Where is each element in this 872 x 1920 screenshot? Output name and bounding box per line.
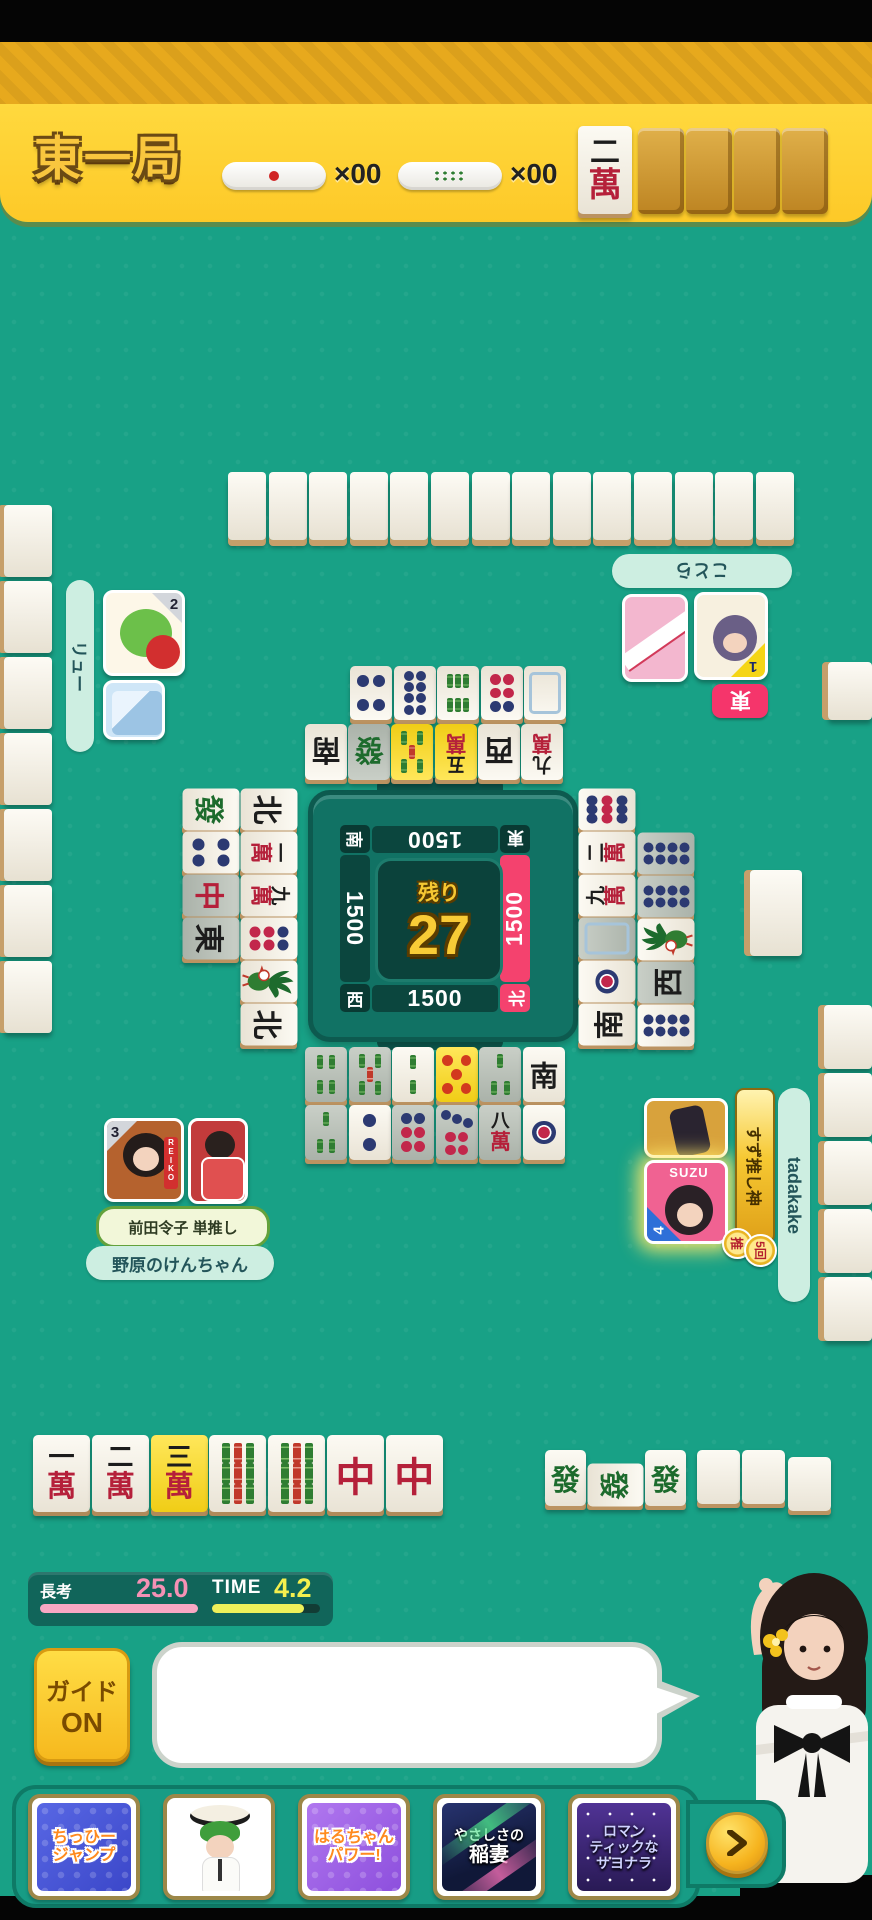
thousand-point-stick-icon — [222, 162, 326, 190]
wall-tile — [4, 581, 52, 653]
wall-tile — [824, 1005, 872, 1069]
tile-2s — [392, 1047, 434, 1102]
avatar-right-glowing: SUZU 4 — [644, 1160, 728, 1244]
time-value: 4.2 — [274, 1573, 312, 1604]
chevron-right-icon — [726, 1830, 748, 1856]
blank-tile-slot — [742, 1450, 785, 1504]
wall-tile — [824, 1141, 872, 1205]
tile-6p — [240, 917, 297, 959]
wall-tile — [309, 472, 347, 540]
bowing-character-icon — [172, 1803, 266, 1891]
header-backdrop — [0, 42, 872, 112]
tile-5s — [349, 1047, 391, 1102]
tile-8p — [637, 1004, 694, 1046]
riichi-stick-count: ×00 — [334, 158, 382, 190]
wall-tile — [4, 505, 52, 577]
tile-9m: 九萬 — [240, 874, 297, 916]
skill-card-1[interactable]: ちっひー ジャンプ — [28, 1794, 140, 1900]
tile-H — [578, 917, 635, 959]
speech-bubble — [152, 1642, 662, 1768]
more-skills-button[interactable] — [706, 1812, 768, 1874]
wall-tile — [824, 1073, 872, 1137]
player-name-top: ことら — [612, 554, 792, 588]
wall-tile — [715, 472, 753, 540]
wall-tile — [634, 472, 672, 540]
avatar-top: 1 — [694, 592, 768, 680]
tile-8p — [637, 832, 694, 874]
tile-6s — [437, 666, 479, 720]
tile-N: 北 — [240, 788, 297, 830]
skill-card-5[interactable]: ロマン ティックな サヨナラ — [568, 1794, 680, 1900]
wall-tile — [4, 657, 52, 729]
timer-panel: 長考 25.0 TIME 4.2 — [28, 1572, 333, 1626]
hand-tile-9s[interactable] — [209, 1435, 266, 1512]
meld-tile-F-called: 發 — [587, 1463, 643, 1506]
wall-tile — [4, 809, 52, 881]
game-screen: 東一局 ×00 ×00 二萬 南 1500 東 1500 1500 西 1500… — [0, 0, 872, 1920]
tile-4p — [350, 666, 392, 720]
wall-tile — [824, 1209, 872, 1273]
seat-wind-left: 南 — [340, 825, 370, 853]
tile-3s — [305, 1105, 347, 1160]
wall-tile — [228, 472, 266, 540]
hundred-stick-count: ×00 — [510, 158, 558, 190]
photo-card-right — [644, 1098, 728, 1158]
seat-wind-right: 北 — [500, 984, 530, 1012]
wall-tile — [593, 472, 631, 540]
wall-tile — [4, 733, 52, 805]
remaining-tiles-box: 残り 27 — [375, 858, 503, 982]
tile-N: 北 — [240, 1003, 297, 1045]
tile-5m: 五萬 — [435, 724, 477, 780]
hand-tile-C[interactable]: 中 — [386, 1435, 443, 1512]
wall-tile — [269, 472, 307, 540]
wall-tile — [4, 885, 52, 957]
thinking-label: 長考 — [40, 1578, 72, 1602]
hand-tile-3m[interactable]: 三萬 — [151, 1435, 208, 1512]
hand-tile-C[interactable]: 中 — [327, 1435, 384, 1512]
wall-tile — [824, 1277, 872, 1341]
tile-E: 東 — [182, 917, 239, 959]
tile-6p — [392, 1105, 434, 1160]
tile-2m: 二萬 — [578, 126, 632, 214]
wall-tile — [828, 662, 872, 720]
tile-6p — [481, 666, 523, 720]
wall-tile — [472, 472, 510, 540]
time-bar-fill — [212, 1604, 304, 1613]
oshi-banner-right: すず推し神 — [735, 1088, 775, 1244]
one-bamboo-bird — [240, 960, 297, 1002]
wall-tile — [750, 870, 802, 956]
tile-4s — [305, 1047, 347, 1102]
tile-8m: 八萬 — [479, 1105, 521, 1160]
skill-count-chip: 5回 — [744, 1234, 777, 1267]
remaining-count: 27 — [408, 907, 470, 963]
tile-9m: 九萬 — [521, 724, 563, 780]
wall-tile — [553, 472, 591, 540]
tile-5p — [436, 1047, 478, 1102]
thinking-bar — [40, 1604, 198, 1613]
tile-C: 中 — [182, 874, 239, 916]
player-name-right: tadakake — [778, 1088, 810, 1302]
avatar-bottom: REIKO 3 — [104, 1118, 184, 1202]
avatar-caption: SUZU — [647, 1165, 728, 1181]
tile-H — [524, 666, 566, 720]
tile-1p — [523, 1105, 565, 1160]
guide-on-button[interactable]: ガイド ON — [34, 1648, 130, 1762]
wall-tile — [675, 472, 713, 540]
hundred-point-stick-icon — [398, 162, 502, 190]
tile-1p — [578, 960, 635, 1002]
tile-F: 發 — [182, 788, 239, 830]
skill-card-4[interactable]: やさしさの 稲妻 — [433, 1794, 545, 1900]
tile-9m: 九萬 — [578, 874, 635, 916]
facedown-tile — [734, 128, 780, 214]
player-name-bottom: 野原のけんちゃん — [86, 1246, 274, 1280]
hand-tile-9s[interactable] — [268, 1435, 325, 1512]
tile-8p — [637, 875, 694, 917]
tile-W: 西 — [637, 961, 694, 1003]
speech-bubble-tail-fill — [652, 1686, 688, 1716]
seat-score-bottom: 1500 — [372, 985, 498, 1012]
stick-red-dot — [269, 171, 279, 181]
skill-card-2[interactable] — [163, 1794, 275, 1900]
facedown-tile — [638, 128, 684, 214]
seat-wind-bottom: 西 — [340, 984, 370, 1012]
meld-tile-F: 發 — [645, 1450, 686, 1506]
blank-tile-slot — [788, 1457, 831, 1511]
facedown-tile — [782, 128, 828, 214]
tile-1s — [637, 918, 694, 960]
tile-1s — [240, 960, 297, 1002]
avatar-left: 2 — [103, 590, 185, 676]
time-label: TIME — [212, 1577, 261, 1599]
player-name-left: リュー — [66, 580, 94, 752]
tile-4p — [182, 831, 239, 873]
seat-wind-top: 東 — [500, 825, 530, 853]
wall-tile — [512, 472, 550, 540]
photo-card-top — [622, 594, 688, 682]
one-bamboo-bird — [637, 918, 694, 960]
wall-tile — [756, 472, 794, 540]
tile-2p — [349, 1105, 391, 1160]
tile-S: 南 — [578, 1003, 635, 1045]
hand-tile-2m[interactable]: 二萬 — [92, 1435, 149, 1512]
blank-tile-slot — [697, 1450, 740, 1504]
hand-tile-1m[interactable]: 一萬 — [33, 1435, 90, 1512]
photo-card-left — [103, 680, 165, 740]
facedown-tile — [686, 128, 732, 214]
wall-tile — [4, 961, 52, 1033]
seat-score-top: 1500 — [372, 826, 498, 853]
dealer-seat-badge-top: 東 — [712, 684, 768, 718]
wall-tile — [431, 472, 469, 540]
meld-tile-F: 發 — [545, 1450, 586, 1506]
tile-S: 南 — [523, 1047, 565, 1102]
tile-9p — [578, 788, 635, 830]
oshi-label-bottom: 前田令子 単推し — [96, 1206, 270, 1248]
wall-tile — [350, 472, 388, 540]
thinking-value: 25.0 — [136, 1573, 189, 1604]
tile-5s — [391, 724, 433, 780]
tile-W: 西 — [478, 724, 520, 780]
tile-2m: 二萬 — [578, 831, 635, 873]
wall-tile — [390, 472, 428, 540]
seat-score-left: 1500 — [340, 855, 370, 982]
status-bar-top — [0, 0, 872, 42]
seat-score-right-active: 1500 — [500, 855, 530, 982]
tile-7p — [436, 1105, 478, 1160]
stick-green-dots — [433, 170, 467, 182]
tile-S: 南 — [305, 724, 347, 780]
round-label: 東一局 — [34, 120, 184, 189]
tile-1m: 一萬 — [240, 831, 297, 873]
photo-card-bottom — [188, 1118, 248, 1204]
tile-F: 發 — [348, 724, 390, 780]
skill-card-3[interactable]: はるちゃん パワー! — [298, 1794, 410, 1900]
tile-8p — [394, 666, 436, 720]
tile-3s — [479, 1047, 521, 1102]
